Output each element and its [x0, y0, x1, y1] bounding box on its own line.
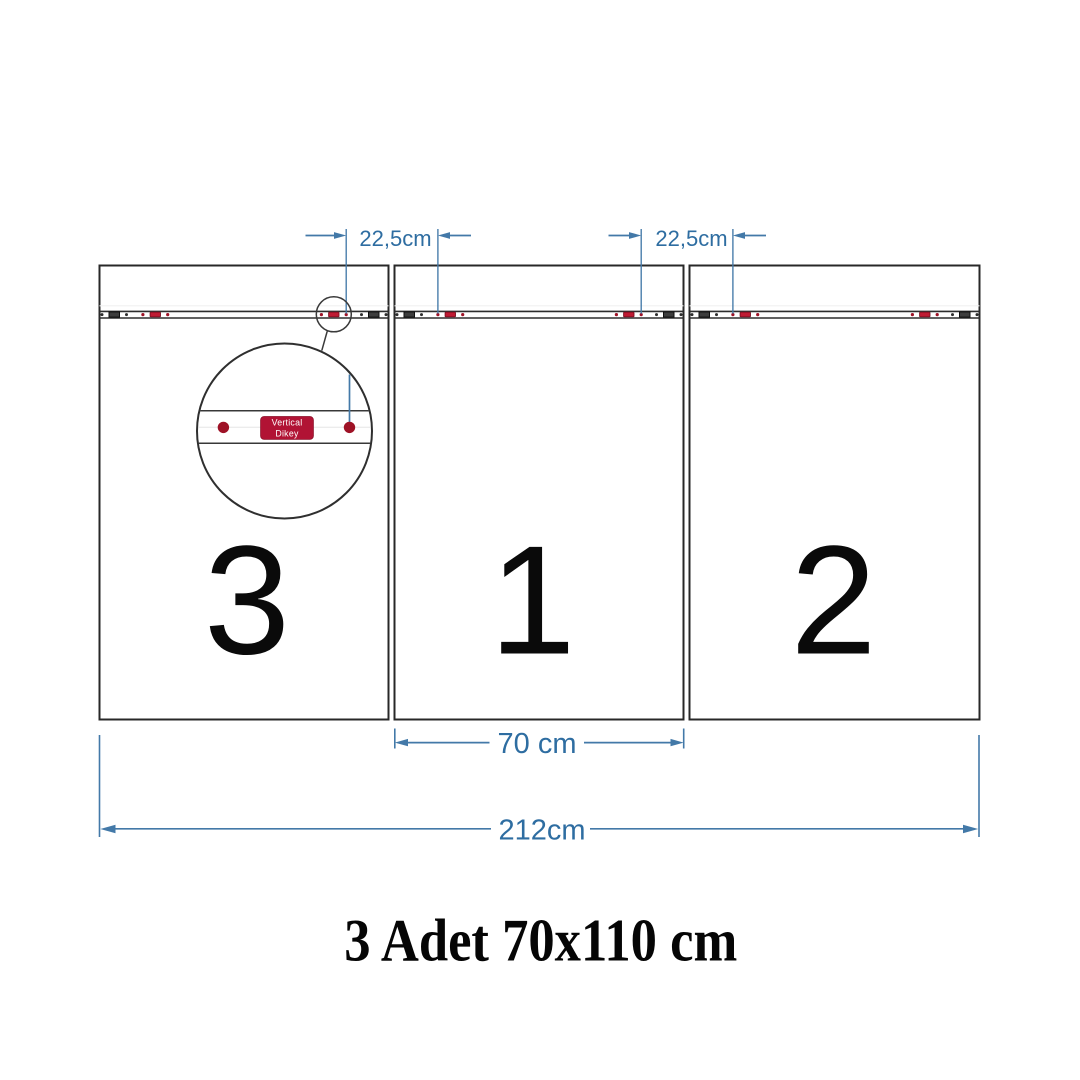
svg-text:2: 2 [790, 514, 876, 687]
svg-text:22,5cm: 22,5cm [359, 226, 431, 251]
svg-text:3: 3 [204, 514, 290, 687]
svg-text:Dikey: Dikey [275, 428, 299, 438]
svg-text:22,5cm: 22,5cm [655, 226, 727, 251]
svg-text:70 cm: 70 cm [498, 728, 577, 760]
svg-text:212cm: 212cm [498, 815, 585, 847]
svg-text:Vertical: Vertical [272, 418, 303, 428]
svg-text:3 Adet 70x110 cm: 3 Adet 70x110 cm [344, 908, 737, 974]
svg-text:1: 1 [489, 514, 575, 687]
